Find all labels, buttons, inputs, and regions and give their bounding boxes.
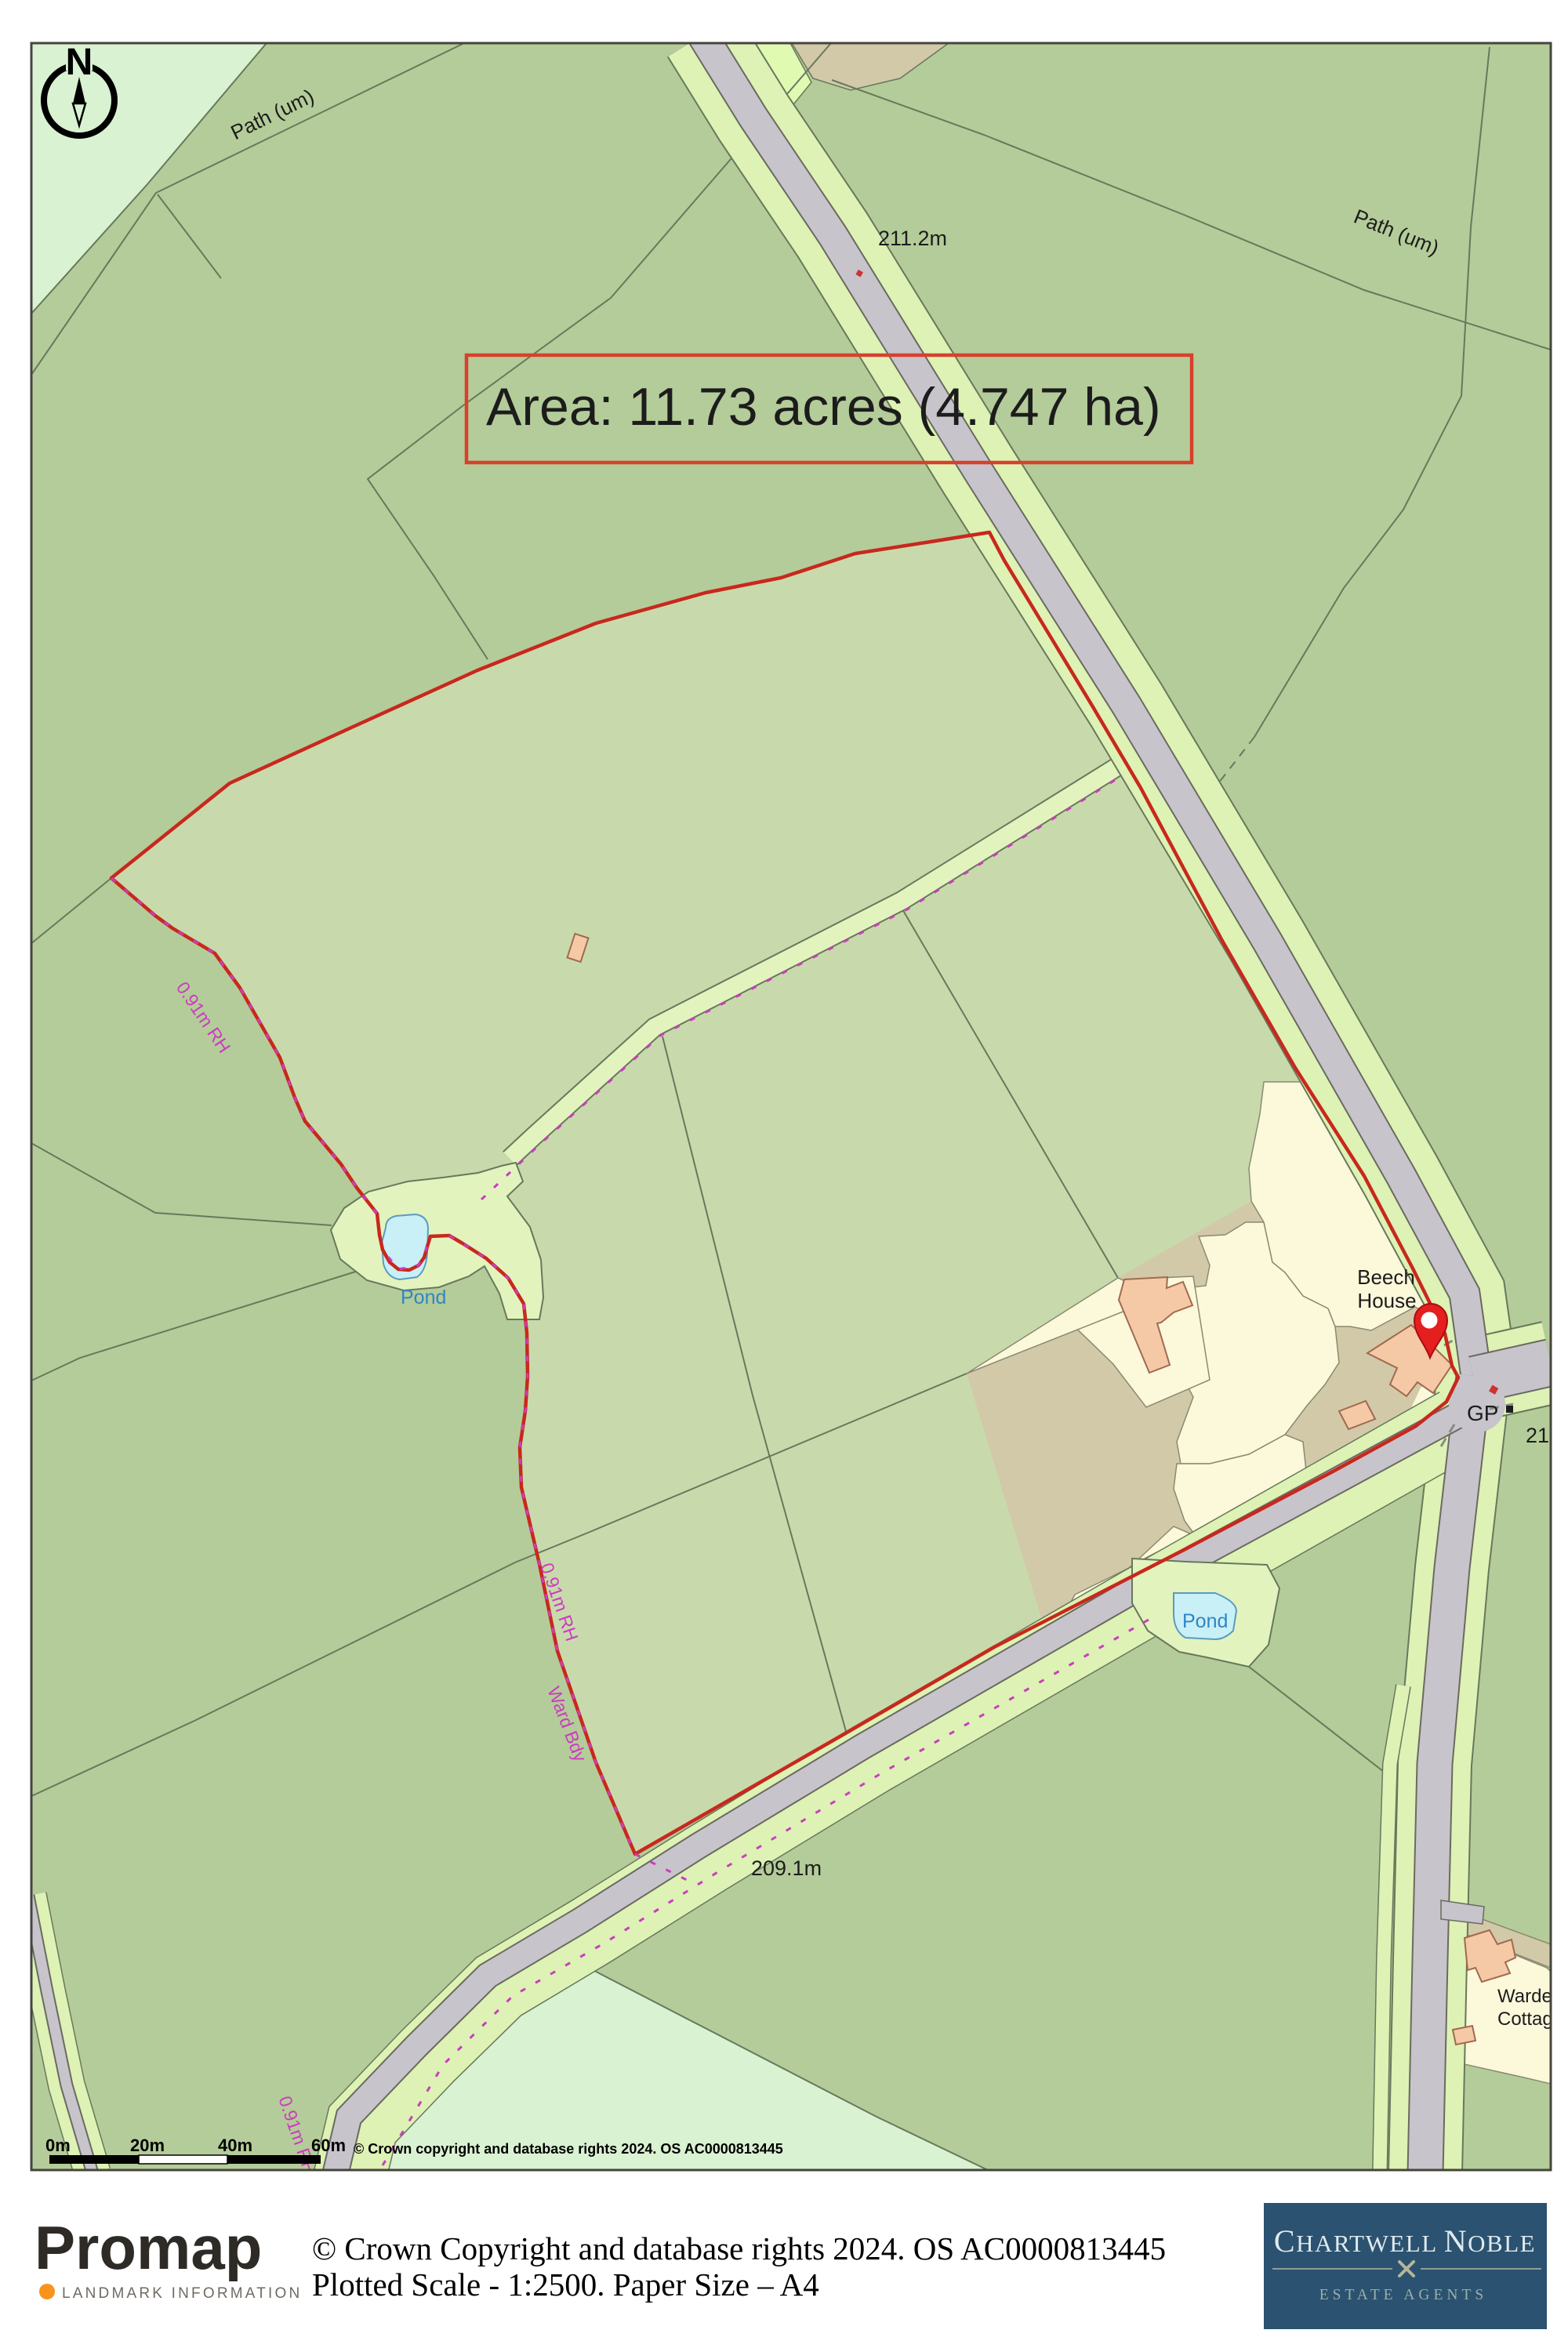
svg-text:211.2m: 211.2m xyxy=(878,227,947,250)
svg-text:House: House xyxy=(1357,1289,1416,1312)
svg-text:LANDMARK INFORMATION: LANDMARK INFORMATION xyxy=(62,2285,302,2302)
svg-text:Warde: Warde xyxy=(1497,1986,1552,2007)
svg-text:ESTATE AGENTS: ESTATE AGENTS xyxy=(1319,2287,1488,2303)
svg-text:0m: 0m xyxy=(45,2136,71,2155)
svg-text:Pond: Pond xyxy=(1182,1610,1228,1632)
svg-text:GP: GP xyxy=(1467,1401,1498,1425)
svg-text:20m: 20m xyxy=(130,2136,165,2155)
svg-text:Pond: Pond xyxy=(401,1287,446,1308)
svg-text:209.1m: 209.1m xyxy=(751,1856,822,1880)
svg-text:210: 210 xyxy=(1526,1424,1561,1447)
svg-text:Promap: Promap xyxy=(34,2213,262,2282)
svg-text:Area: 11.73 acres (4.747 ha): Area: 11.73 acres (4.747 ha) xyxy=(486,377,1161,437)
svg-text:40m: 40m xyxy=(218,2136,252,2155)
svg-text:© Crown Copyright and database: © Crown Copyright and database rights 20… xyxy=(312,2230,1166,2266)
svg-text:Beech: Beech xyxy=(1357,1265,1415,1289)
svg-text:© Crown copyright and database: © Crown copyright and database rights 20… xyxy=(354,2141,783,2157)
svg-text:Plotted Scale - 1:2500. Paper: Plotted Scale - 1:2500. Paper Size – A4 xyxy=(312,2266,819,2303)
svg-text:Cottage: Cottage xyxy=(1497,2009,1563,2030)
svg-text:60m: 60m xyxy=(311,2136,346,2155)
